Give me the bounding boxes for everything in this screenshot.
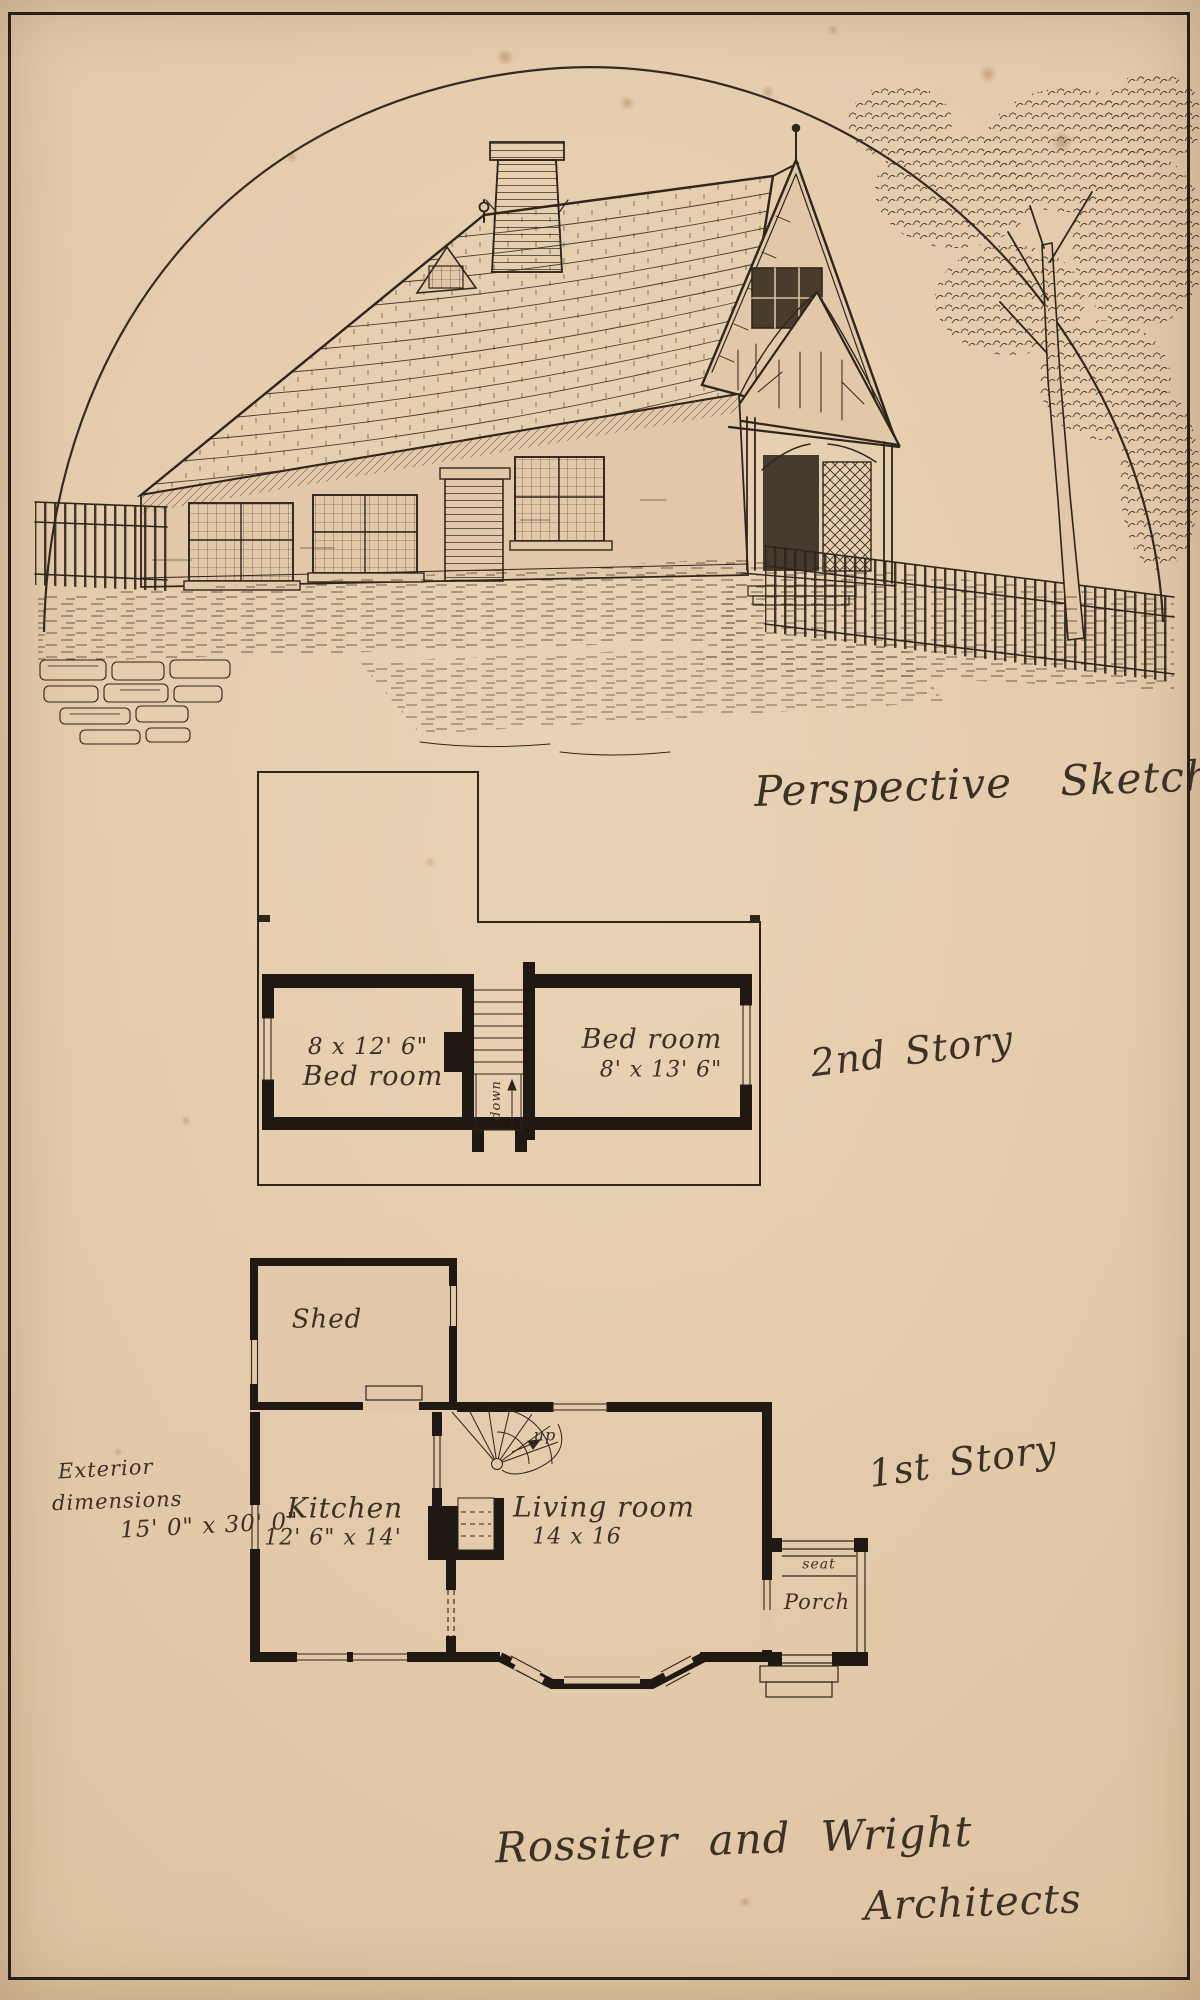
window-left-2 bbox=[308, 495, 424, 582]
tree-foliage bbox=[848, 73, 1200, 570]
house-sketch bbox=[35, 73, 1200, 755]
second-story-right-bedroom-dims: 8' x 13' 6" bbox=[600, 1058, 723, 1081]
first-story-living-room-name: Living room bbox=[513, 1492, 695, 1521]
first-story-kitchen-name: Kitchen bbox=[287, 1493, 403, 1522]
first-story-living-room-dims: 14 x 16 bbox=[532, 1525, 621, 1548]
chimney bbox=[486, 142, 568, 272]
first-story-stair-label: up bbox=[534, 1428, 557, 1445]
window-left-1 bbox=[184, 503, 300, 590]
tree bbox=[848, 73, 1200, 640]
line-art bbox=[0, 0, 1200, 2000]
second-story-stair-label: down bbox=[490, 1080, 504, 1120]
second-story-left-bedroom-dims: 8 x 12' 6" bbox=[308, 1035, 428, 1059]
second-story-right-bedroom-name: Bed room bbox=[582, 1026, 723, 1054]
architect-role: Architects bbox=[863, 1878, 1082, 1928]
porch-seat-label: seat bbox=[802, 1558, 835, 1573]
ground bbox=[38, 558, 1174, 755]
exterior-note-line1: Exterior bbox=[57, 1456, 154, 1483]
porch-name-label: Porch bbox=[784, 1591, 850, 1613]
exterior-note-line2: dimensions bbox=[52, 1488, 183, 1515]
first-story-shed-label: Shed bbox=[292, 1306, 363, 1333]
wall-buttress bbox=[440, 468, 510, 581]
shed-walls bbox=[249, 1258, 459, 1412]
second-story-left-bedroom-name: Bed room bbox=[303, 1063, 444, 1091]
window-right bbox=[510, 457, 612, 550]
stone-path bbox=[40, 660, 230, 744]
picket-fence-left bbox=[35, 502, 167, 591]
second-story-plan bbox=[258, 772, 760, 1185]
plate-page: Perspective Sketch 8 x 12' 6" Bed room B… bbox=[0, 0, 1200, 2000]
